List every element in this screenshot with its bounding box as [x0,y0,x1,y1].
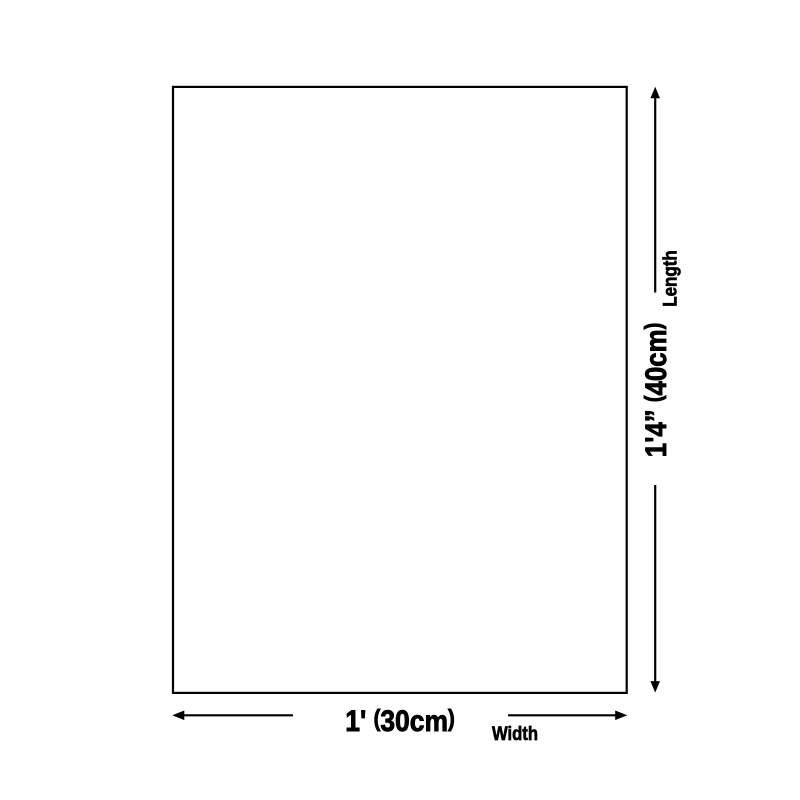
svg-text:1' (30cm): 1' (30cm) [345,703,454,737]
svg-text:Width: Width [492,723,538,745]
svg-text:1'4” (40cm): 1'4” (40cm) [639,323,672,457]
svg-text:Length: Length [659,250,681,307]
